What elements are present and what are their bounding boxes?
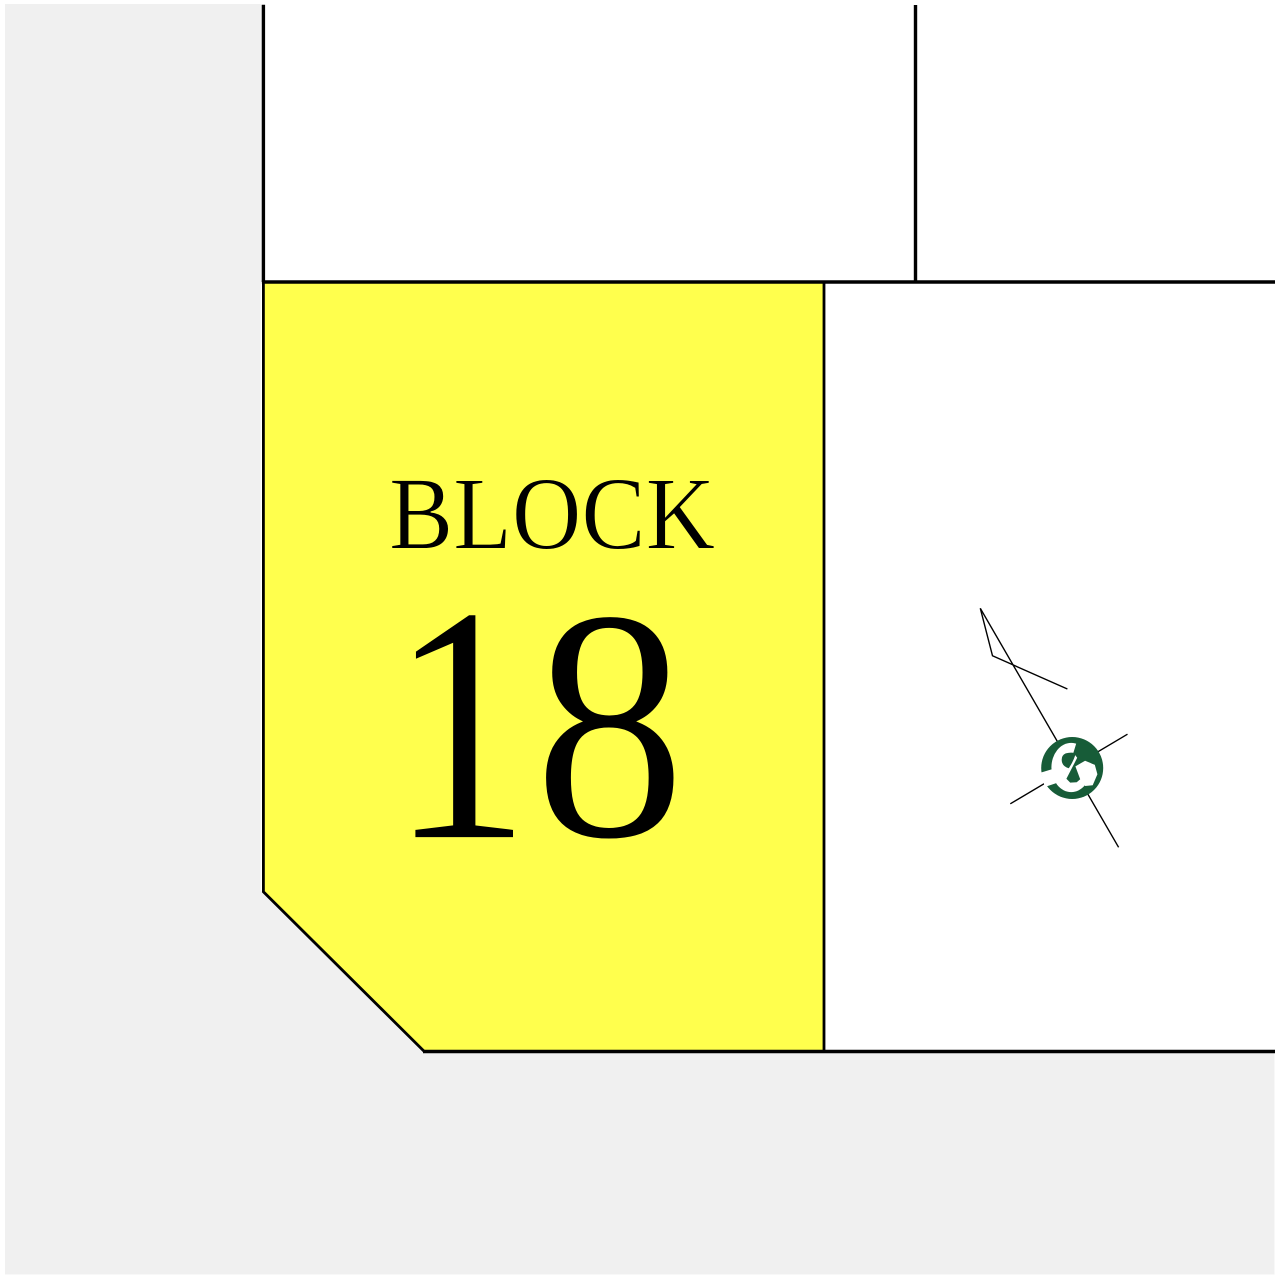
svg-text:1: 1: [390, 538, 531, 912]
svg-text:8: 8: [533, 541, 686, 908]
